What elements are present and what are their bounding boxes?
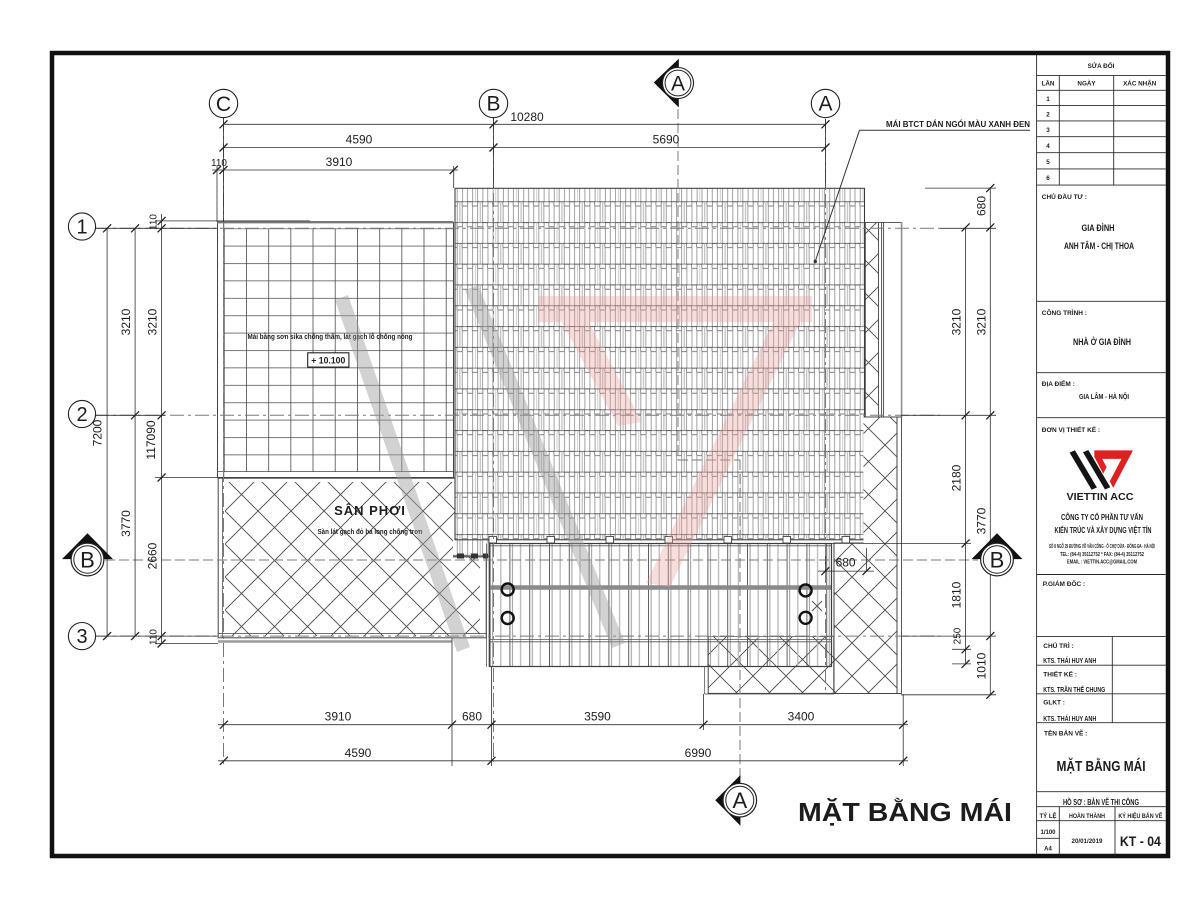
svg-text:2: 2: [1046, 112, 1050, 119]
svg-text:3770: 3770: [974, 507, 988, 534]
svg-text:3400: 3400: [788, 710, 815, 724]
svg-text:GIA ĐÌNH: GIA ĐÌNH: [1082, 223, 1115, 233]
svg-text:EMAIL : VIETTIN.ACC@GMAIL.COM: EMAIL : VIETTIN.ACC@GMAIL.COM: [1067, 560, 1137, 566]
svg-text:1/100: 1/100: [1040, 830, 1056, 836]
svg-text:A: A: [671, 73, 685, 96]
svg-text:SỐ 8 NGÕ 29 ĐƯỜNG VÕ VĂN CÔNG: SỐ 8 NGÕ 29 ĐƯỜNG VÕ VĂN CÔNG - Ô CHỢ DỪ…: [1049, 542, 1155, 550]
svg-text:2: 2: [76, 404, 87, 426]
svg-text:7200: 7200: [91, 419, 105, 446]
svg-text:A4: A4: [1044, 847, 1052, 853]
svg-text:HỒ SƠ : BẢN VẼ THI CÔNG: HỒ SƠ : BẢN VẼ THI CÔNG: [1063, 797, 1139, 807]
svg-text:SÂN PHƠI: SÂN PHƠI: [334, 503, 406, 518]
svg-text:KIẾN TRÚC VÀ XÂY DỰNG VIỆT TÍN: KIẾN TRÚC VÀ XÂY DỰNG VIỆT TÍN: [1055, 524, 1152, 535]
svg-text:KT - 04: KT - 04: [1120, 833, 1161, 849]
svg-text:10280: 10280: [510, 110, 544, 124]
svg-text:TEL: (84-4) 35112752 * FAX: (8: TEL: (84-4) 35112752 * FAX: (84-4) 35112…: [1060, 552, 1144, 558]
svg-text:6990: 6990: [685, 746, 712, 760]
svg-text:680: 680: [462, 710, 482, 724]
svg-text:A: A: [732, 788, 747, 813]
svg-text:3910: 3910: [325, 710, 352, 724]
svg-text:KTS. TRẦN THẾ CHUNG: KTS. TRẦN THẾ CHUNG: [1043, 684, 1105, 694]
svg-text:110: 110: [149, 629, 160, 645]
svg-text:A: A: [818, 93, 832, 116]
svg-text:CHỦ TRÌ :: CHỦ TRÌ :: [1043, 641, 1073, 650]
svg-text:110: 110: [211, 158, 227, 169]
svg-text:3910: 3910: [326, 155, 353, 169]
svg-text:1: 1: [76, 217, 87, 239]
svg-text:TÊN BẢN VẼ :: TÊN BẢN VẼ :: [1044, 729, 1087, 738]
svg-text:3210: 3210: [950, 308, 964, 335]
svg-text:B: B: [80, 548, 95, 573]
svg-text:SỬA ĐỔI: SỬA ĐỔI: [1088, 61, 1115, 70]
svg-text:KTS. THÁI HUY ANH: KTS. THÁI HUY ANH: [1043, 656, 1096, 665]
svg-text:2180: 2180: [950, 464, 964, 491]
svg-text:4590: 4590: [346, 133, 373, 147]
svg-text:3770: 3770: [119, 510, 133, 537]
svg-text:Sàn lát gạch đỏ ba long chống: Sàn lát gạch đỏ ba long chống trơn: [318, 527, 423, 536]
svg-text:NGÀY: NGÀY: [1077, 79, 1096, 88]
svg-text:MẶT BẰNG MÁI: MẶT BẰNG MÁI: [798, 797, 1012, 827]
svg-text:20/01/2019: 20/01/2019: [1072, 838, 1103, 845]
svg-text:C: C: [216, 93, 231, 116]
svg-text:3: 3: [76, 626, 87, 648]
svg-text:1: 1: [1046, 96, 1050, 103]
svg-text:4590: 4590: [345, 746, 372, 760]
svg-text:117090: 117090: [144, 420, 158, 459]
svg-text:B: B: [486, 93, 500, 116]
svg-text:6: 6: [1046, 175, 1050, 182]
svg-text:1010: 1010: [974, 652, 988, 679]
svg-text:680: 680: [836, 556, 856, 570]
svg-text:3: 3: [1046, 127, 1050, 134]
svg-text:110: 110: [149, 214, 160, 230]
svg-text:MÁI BTCT DÁN NGÓI MÀU XANH ĐEN: MÁI BTCT DÁN NGÓI MÀU XANH ĐEN: [886, 118, 1030, 129]
svg-text:NHÀ Ở GIA ĐÌNH: NHÀ Ở GIA ĐÌNH: [1073, 336, 1131, 347]
svg-text:KÝ HIỆU BẢN VẼ: KÝ HIỆU BẢN VẼ: [1118, 812, 1162, 820]
svg-text:CÔNG TRÌNH :: CÔNG TRÌNH :: [1042, 308, 1087, 317]
svg-text:250: 250: [953, 627, 964, 644]
svg-text:5: 5: [1046, 159, 1050, 166]
svg-text:3210: 3210: [146, 308, 160, 335]
svg-text:680: 680: [974, 196, 988, 216]
svg-text:TỶ LỆ: TỶ LỆ: [1039, 812, 1056, 820]
svg-text:ANH TÂM - CHỊ THOA: ANH TÂM - CHỊ THOA: [1064, 240, 1134, 251]
svg-text:XÁC NHẬN: XÁC NHẬN: [1123, 79, 1157, 88]
svg-text:MẶT BẰNG MÁI: MẶT BẰNG MÁI: [1057, 757, 1146, 775]
svg-text:B: B: [990, 548, 1005, 573]
svg-text:GIA LÂM - HÀ NỘI: GIA LÂM - HÀ NỘI: [1079, 392, 1129, 401]
svg-text:HOÀN THÀNH: HOÀN THÀNH: [1069, 813, 1105, 820]
svg-text:1810: 1810: [950, 581, 964, 608]
svg-text:+ 10.100: + 10.100: [311, 355, 345, 365]
svg-text:2660: 2660: [146, 542, 160, 569]
svg-text:VIETTIN ACC: VIETTIN ACC: [1067, 491, 1134, 503]
svg-text:4: 4: [1046, 143, 1050, 150]
svg-text:5690: 5690: [653, 133, 680, 147]
svg-text:CÔNG TY CỔ PHẦN TƯ VẤN: CÔNG TY CỔ PHẦN TƯ VẤN: [1061, 511, 1143, 522]
svg-text:KTS. THÁI HUY ANH: KTS. THÁI HUY ANH: [1043, 714, 1096, 723]
svg-text:3210: 3210: [974, 308, 988, 335]
svg-text:GLKT :: GLKT :: [1043, 700, 1065, 707]
svg-text:3590: 3590: [584, 710, 611, 724]
svg-text:ĐỊA ĐIỂM :: ĐỊA ĐIỂM :: [1042, 379, 1075, 388]
svg-text:Mái bằng sơn sika chống thấm,: Mái bằng sơn sika chống thấm, lát gạch l…: [248, 332, 413, 341]
svg-text:3210: 3210: [119, 308, 133, 335]
